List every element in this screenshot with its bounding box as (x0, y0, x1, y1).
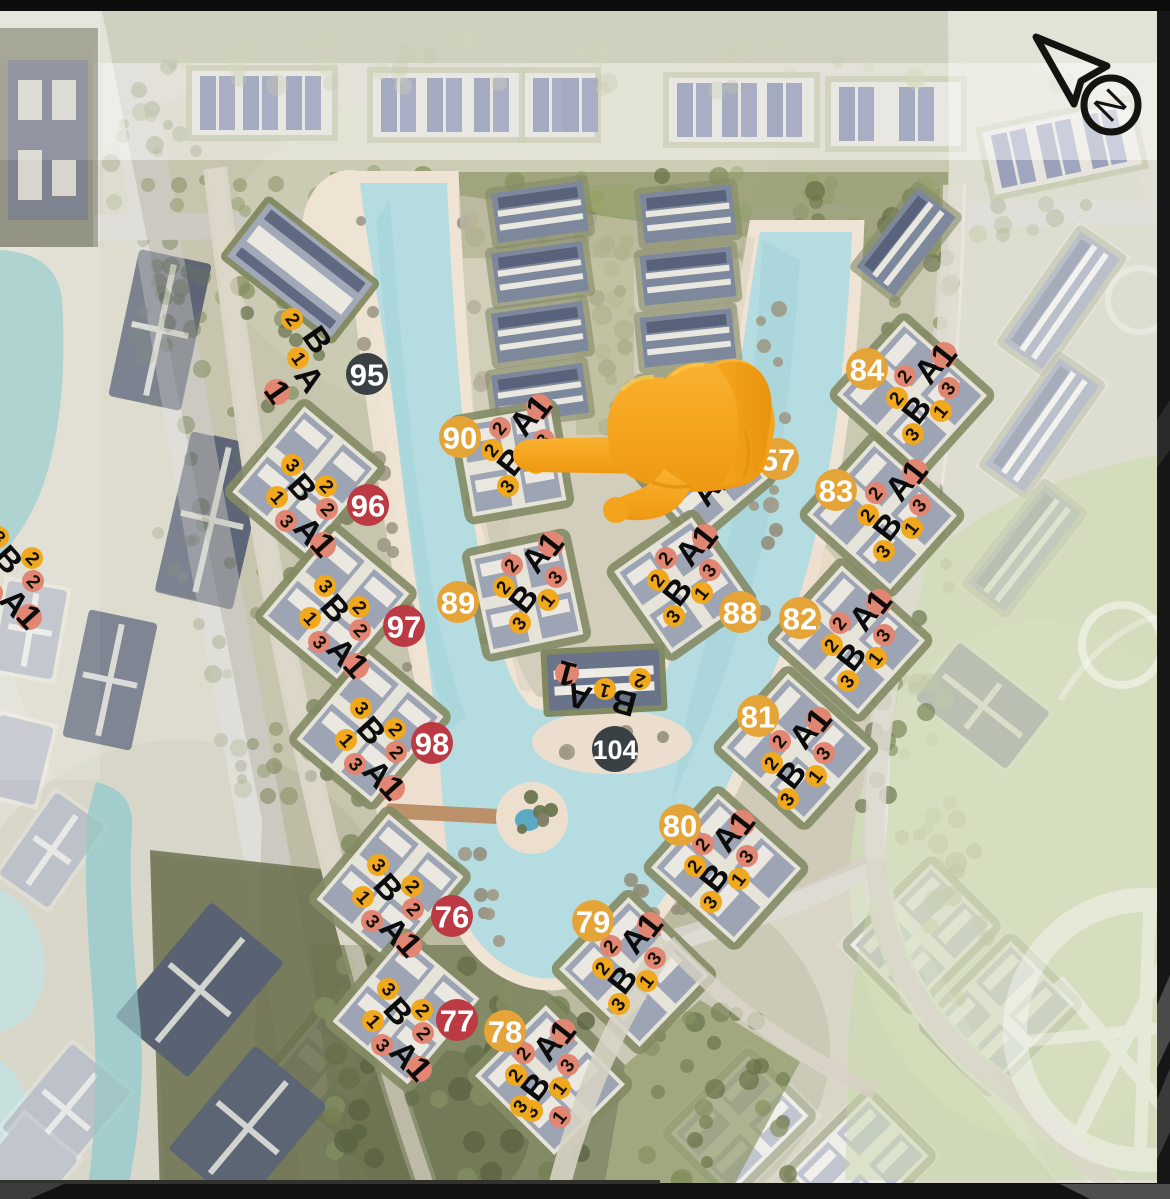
svg-text:76: 76 (435, 900, 469, 935)
svg-text:80: 80 (663, 809, 697, 844)
svg-text:84: 84 (850, 353, 885, 388)
svg-text:98: 98 (415, 727, 449, 762)
svg-text:77: 77 (440, 1004, 474, 1039)
svg-text:83: 83 (819, 474, 853, 509)
svg-text:88: 88 (723, 596, 757, 631)
svg-text:82: 82 (783, 602, 817, 637)
svg-text:89: 89 (441, 586, 475, 621)
svg-text:90: 90 (443, 421, 477, 456)
svg-text:95: 95 (350, 358, 384, 393)
svg-text:81: 81 (741, 700, 775, 735)
svg-text:104: 104 (592, 735, 637, 765)
svg-text:78: 78 (488, 1015, 522, 1050)
svg-text:97: 97 (387, 610, 421, 645)
svg-text:96: 96 (351, 489, 385, 524)
svg-text:79: 79 (576, 905, 610, 940)
